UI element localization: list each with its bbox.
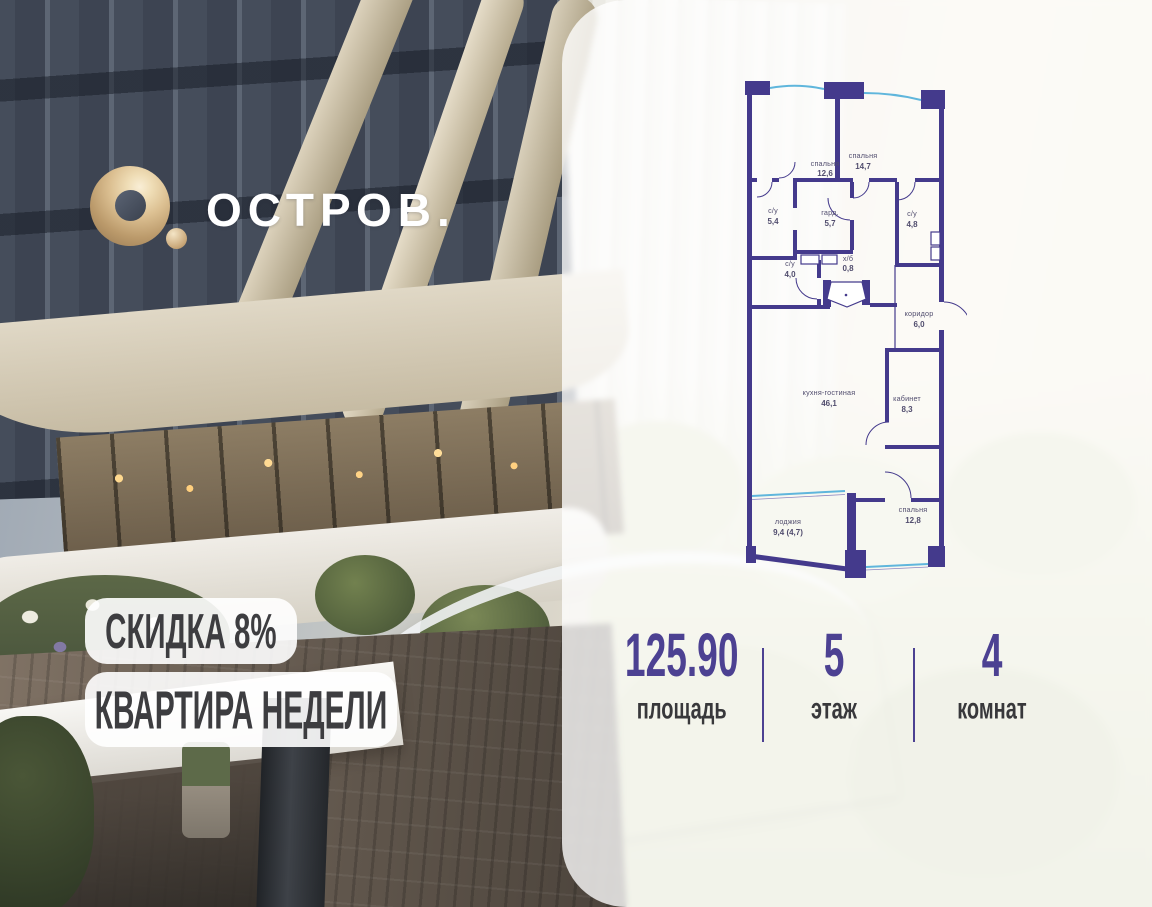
room-area: 5,4	[767, 217, 779, 226]
stats-divider	[913, 648, 915, 742]
room-area: 12,6	[817, 169, 833, 178]
discount-badge-label: СКИДКА 8%	[105, 602, 276, 660]
room-area: 14,7	[855, 162, 871, 171]
room-area: 5,7	[824, 219, 836, 228]
vestibule-dot	[845, 294, 848, 297]
plan-fixtures	[801, 232, 940, 307]
loggia-bottom-wall	[750, 556, 847, 569]
room-label: лоджия	[775, 517, 801, 526]
room-label: х/б	[843, 254, 853, 263]
room-label: спальня	[849, 151, 878, 160]
room-area: 4,0	[784, 270, 796, 279]
stat-area: 125.90 площадь	[592, 626, 772, 724]
stat-rooms-label: комнат	[932, 694, 1052, 724]
stat-floor-label: этаж	[774, 694, 894, 724]
planter-pot	[182, 742, 230, 838]
room-area: 0,8	[842, 264, 854, 273]
stat-floor: 5 этаж	[774, 626, 894, 724]
room-label: спальня	[899, 505, 928, 514]
brand-ring-icon	[90, 166, 170, 246]
room-area: 9,4 (4,7)	[773, 528, 803, 537]
real-estate-ad-banner[interactable]: ОСТРОВ. СКИДКА 8% КВАРТИРА НЕДЕЛИ	[0, 0, 1152, 907]
room-label: кухня-гостиная	[803, 388, 856, 397]
stats-divider	[762, 648, 764, 742]
room-area: 8,3	[901, 405, 913, 414]
room-label: с/у	[785, 259, 795, 268]
apartment-stats: 125.90 площадь 5 этаж 4 комнат	[592, 626, 1122, 756]
room-label: с/у	[768, 206, 778, 215]
room-label: кабинет	[893, 394, 921, 403]
apartment-panel: спальня 12,6 спальня 14,7 с/у 5,4 гард. …	[562, 0, 1152, 907]
room-label: коридор	[905, 309, 934, 318]
room-label: с/у	[907, 209, 917, 218]
room-label: спальня	[811, 159, 840, 168]
brand-ring-hole	[115, 190, 146, 221]
room-area: 4,8	[906, 220, 918, 229]
brand-name: ОСТРОВ.	[206, 184, 456, 236]
flat-of-week-badge-label: КВАРТИРА НЕДЕЛИ	[95, 678, 388, 741]
stat-rooms: 4 комнат	[932, 626, 1052, 724]
room-area: 12,8	[905, 516, 921, 525]
discount-badge[interactable]: СКИДКА 8%	[85, 598, 297, 664]
stat-area-label: площадь	[592, 694, 772, 724]
stat-area-value: 125.90	[592, 626, 772, 686]
room-area: 46,1	[821, 399, 837, 408]
floor-plan: спальня 12,6 спальня 14,7 с/у 5,4 гард. …	[745, 80, 967, 582]
plan-walls	[745, 81, 945, 578]
room-label: гард.	[821, 208, 838, 217]
room-area: 6,0	[913, 320, 925, 329]
brand-logo: ОСТРОВ.	[88, 160, 518, 260]
stat-rooms-value: 4	[932, 626, 1052, 686]
bush	[315, 555, 415, 635]
stat-floor-value: 5	[774, 626, 894, 686]
flat-of-week-badge[interactable]: КВАРТИРА НЕДЕЛИ	[85, 672, 397, 747]
brand-dot-icon	[166, 228, 187, 249]
